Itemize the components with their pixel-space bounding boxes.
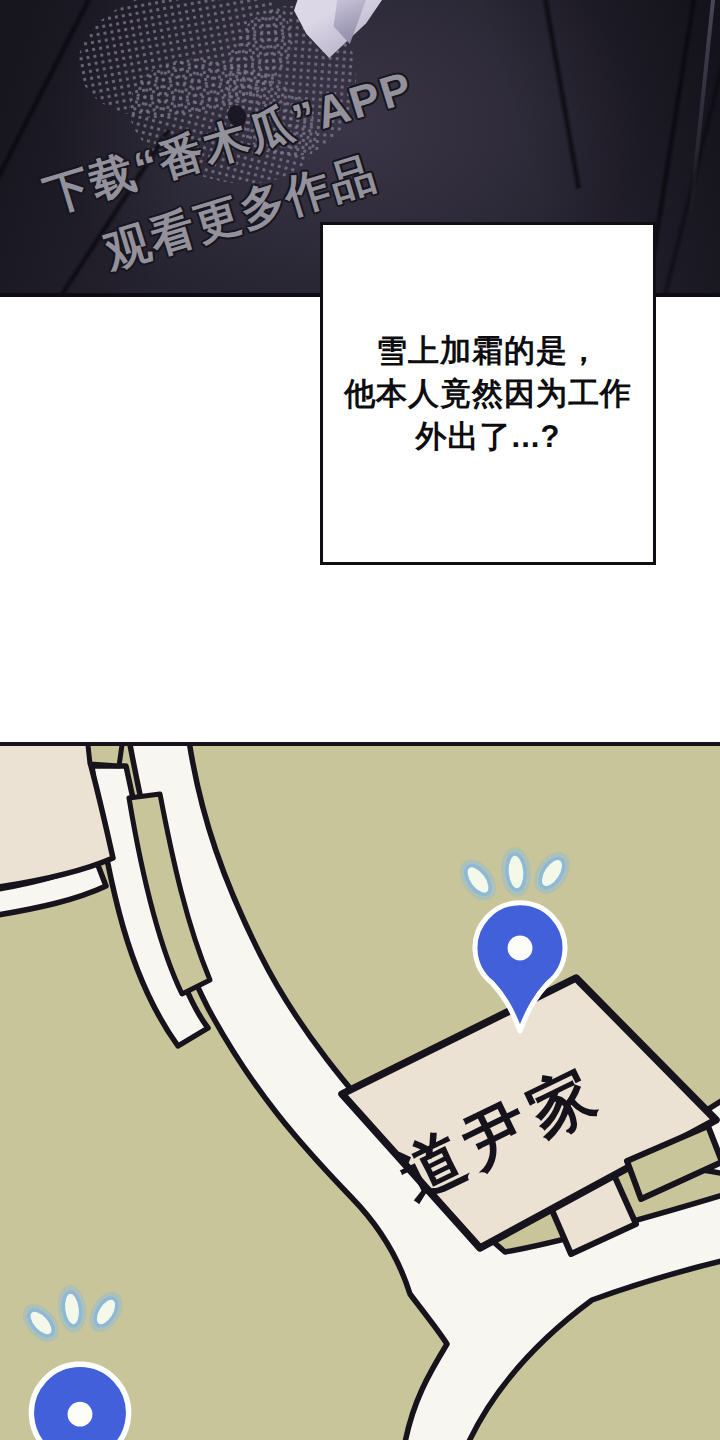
pin-hole xyxy=(68,1402,93,1427)
caption-line: 他本人竟然因为工作 xyxy=(323,372,653,415)
location-pin-icon xyxy=(31,1364,128,1440)
map-border-top xyxy=(0,742,720,746)
map-panel: 道尹家 xyxy=(0,742,720,1440)
comic-page: 下载“番木瓜”APP 观看更多作品 雪上加霜的是， 他本人竟然因为工作 外出了.… xyxy=(0,0,720,1440)
caption-box: 雪上加霜的是， 他本人竟然因为工作 外出了...? xyxy=(320,222,656,565)
caption-line: 外出了...? xyxy=(323,415,653,458)
map-illustration: 道尹家 xyxy=(0,742,720,1440)
jacket-fold-line xyxy=(538,0,583,189)
pin-hole xyxy=(508,936,533,961)
caption-line: 雪上加霜的是， xyxy=(323,329,653,372)
